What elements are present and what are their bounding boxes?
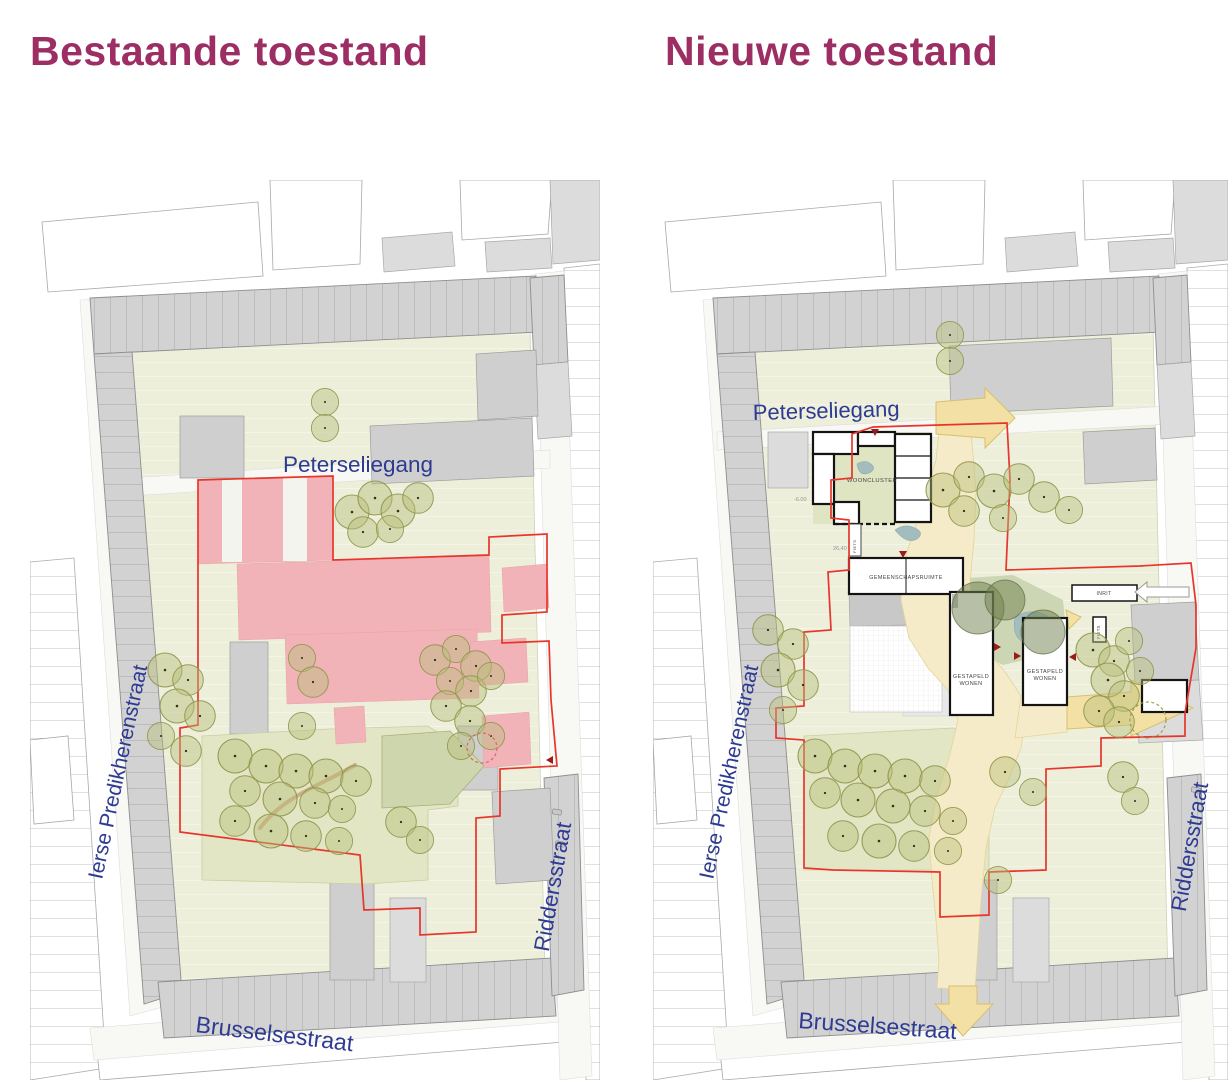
annex-building (1142, 680, 1187, 712)
title-new-condition: Nieuwe toestand (665, 28, 998, 75)
level-annotation: -6.00 (794, 497, 807, 503)
gemeenschapsruimte-building: GEMEENSCHAPSRUIMTE (849, 558, 963, 594)
existing-condition-site-plan: Peterseliegang Ierse Predikherenstraat R… (30, 180, 600, 1080)
title-existing-condition: Bestaande toestand (30, 28, 429, 75)
street-label-peterseliegang: Peterseliegang (283, 452, 433, 477)
svg-text:WONEN: WONEN (959, 681, 982, 687)
label-fiets-storage: FIETS (852, 540, 857, 553)
label-gemeenschapsruimte: GEMEENSCHAPSRUIMTE (869, 575, 942, 581)
entrance-marker (546, 756, 553, 764)
label-wooncluster: WOONCLUSTER (847, 478, 897, 484)
label-gestapeld-wonen-2: GESTAPELD (1027, 669, 1063, 675)
label-gestapeld-wonen-1: GESTAPELD (953, 674, 989, 680)
new-condition-site-plan: WOONCLUSTER GEMEENSCHAPSRUIMTE GESTAPELD… (653, 180, 1228, 1080)
fiets-storage-shed: FIETS (849, 524, 861, 556)
street-label-peterseliegang: Peterseliegang (752, 396, 899, 425)
measure-annotation: 26,40 (833, 546, 847, 552)
label-inrit: INRIT (1096, 591, 1111, 597)
svg-text:WONEN: WONEN (1033, 676, 1056, 682)
